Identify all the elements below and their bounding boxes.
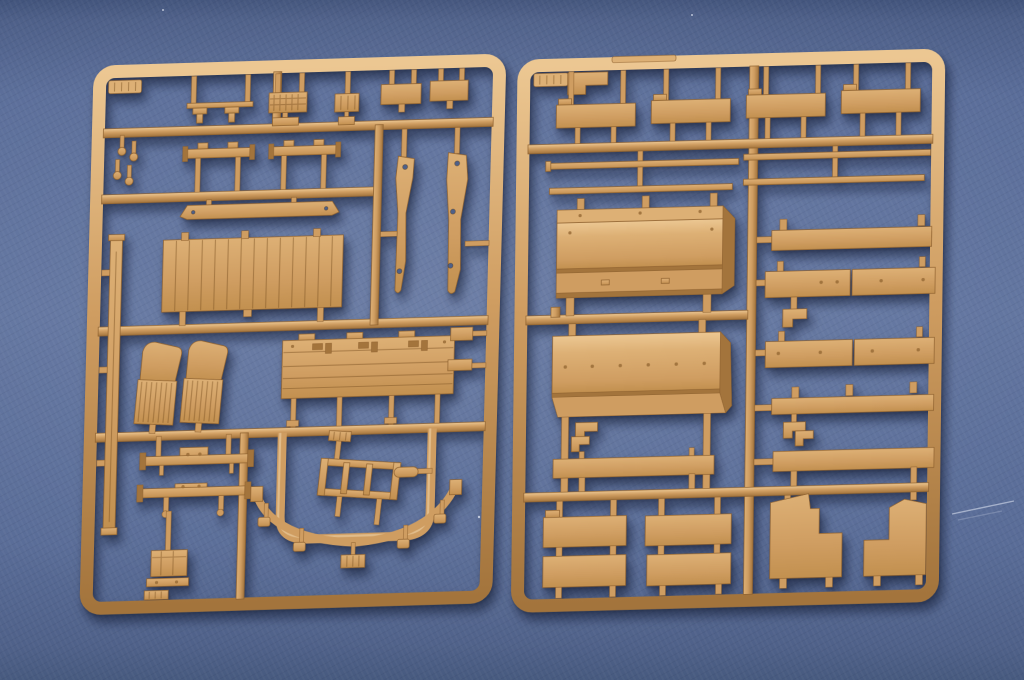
sprue-left xyxy=(86,60,500,609)
bumper-beam-part-2 xyxy=(268,139,341,190)
plank-pair-B xyxy=(755,326,934,368)
photo-of-model-kit-sprues xyxy=(0,0,1024,680)
runner-v2 xyxy=(370,125,383,325)
rail-plank-top xyxy=(757,214,932,251)
floor-board-part-4 xyxy=(646,553,730,596)
fender-part-1 xyxy=(133,342,183,435)
long-plank-bottom-left xyxy=(553,433,715,492)
dust-speck-2 xyxy=(162,9,164,11)
runner-u-loop xyxy=(280,428,433,540)
ribbed-block-part xyxy=(334,71,359,125)
tie-rod-part-4 xyxy=(743,156,924,186)
sprue-top-gate-strip xyxy=(612,55,676,63)
crossmember-part-1 xyxy=(139,434,254,476)
chassis-blade-part-1 xyxy=(379,129,415,294)
pegged-rail-plank xyxy=(754,381,934,439)
plate-part-1 xyxy=(381,69,422,112)
wall-bracket-part-1 xyxy=(451,327,487,341)
surface-scratch xyxy=(952,501,1014,514)
runner-h2-jog xyxy=(551,307,560,317)
dust-speck-1 xyxy=(478,516,480,518)
surface-scratch-2 xyxy=(958,511,1002,520)
ribbed-box-part xyxy=(144,511,190,600)
seat-side-panel-2 xyxy=(863,492,926,587)
floor-board-part-2 xyxy=(645,497,732,555)
fender-part-2 xyxy=(179,340,229,433)
long-plank-bottom-right xyxy=(754,427,935,487)
bed-floor-panel xyxy=(161,228,343,326)
crossmember-part-2 xyxy=(136,482,251,519)
clamp-parts xyxy=(187,74,254,123)
dust-speck-3 xyxy=(691,14,693,16)
plank-pair-A xyxy=(756,256,936,328)
runner-u-loop-highlight xyxy=(278,428,431,538)
chassis-blade-part-2 xyxy=(444,126,492,293)
floor-board-part-1 xyxy=(543,499,627,556)
side-board-part-2 xyxy=(651,68,731,142)
seat-side-panel-1 xyxy=(769,493,842,589)
peg-parts xyxy=(113,135,138,186)
sprue-right-marking-tab xyxy=(534,73,568,87)
ladder-part xyxy=(314,430,404,526)
folded-bed-panel-1 xyxy=(556,193,735,317)
tie-rod-part-3 xyxy=(549,165,732,195)
bed-side-panel xyxy=(280,330,454,428)
floor-board-part-3 xyxy=(542,554,625,598)
wall-bracket-part-2 xyxy=(448,359,486,371)
plate-part-2 xyxy=(430,68,469,109)
sprue-left-marking-tab xyxy=(108,80,141,94)
side-board-part-4 xyxy=(841,63,921,137)
sprue-right xyxy=(517,48,939,606)
bumper-beam-part-1 xyxy=(182,141,255,192)
runner-h3 xyxy=(98,316,488,337)
